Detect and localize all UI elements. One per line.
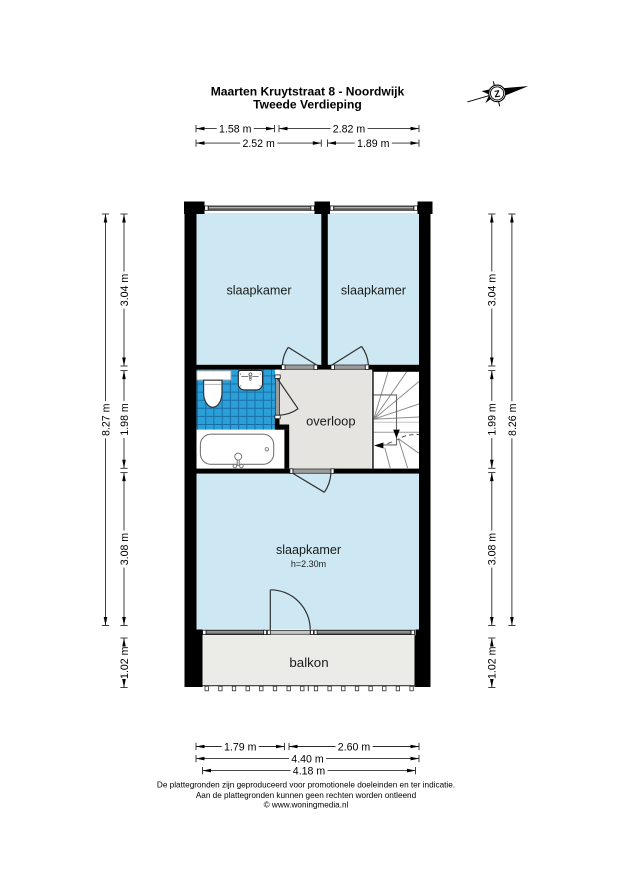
svg-text:© www.woningmedia.nl: © www.woningmedia.nl xyxy=(264,801,349,810)
svg-text:4.18 m: 4.18 m xyxy=(293,766,326,778)
svg-text:h=2.30m: h=2.30m xyxy=(291,559,326,569)
svg-text:3.04 m: 3.04 m xyxy=(487,274,499,307)
svg-text:slaapkamer: slaapkamer xyxy=(341,284,406,298)
svg-text:8.26 m: 8.26 m xyxy=(507,403,519,436)
svg-text:Tweede Verdieping: Tweede Verdieping xyxy=(253,98,362,112)
svg-text:overloop: overloop xyxy=(306,414,355,429)
svg-text:2.82 m: 2.82 m xyxy=(333,124,366,136)
svg-text:Maarten Kruytstraat 8 - Noordw: Maarten Kruytstraat 8 - Noordwijk xyxy=(211,85,405,99)
svg-text:slaapkamer: slaapkamer xyxy=(226,284,291,298)
svg-text:2.60 m: 2.60 m xyxy=(338,741,371,753)
svg-text:balkon: balkon xyxy=(289,655,328,670)
svg-text:1.89 m: 1.89 m xyxy=(357,138,390,150)
svg-text:4.40 m: 4.40 m xyxy=(291,754,324,766)
svg-text:1.58 m: 1.58 m xyxy=(219,124,252,136)
svg-text:Aan de plattegronden kunnen ge: Aan de plattegronden kunnen geen rechten… xyxy=(196,791,417,800)
svg-text:3.04 m: 3.04 m xyxy=(119,274,131,307)
svg-text:8.27 m: 8.27 m xyxy=(100,403,112,436)
svg-text:3.08 m: 3.08 m xyxy=(119,533,131,566)
svg-text:De plattegronden zijn geproduc: De plattegronden zijn geproduceerd voor … xyxy=(157,780,455,789)
svg-text:1.79 m: 1.79 m xyxy=(224,741,257,753)
svg-text:1.98 m: 1.98 m xyxy=(119,403,131,436)
svg-text:slaapkamer: slaapkamer xyxy=(276,543,341,557)
svg-text:1.02 m: 1.02 m xyxy=(119,646,131,679)
svg-text:1.02 m: 1.02 m xyxy=(487,646,499,679)
svg-text:2.52 m: 2.52 m xyxy=(242,138,275,150)
svg-text:1.99 m: 1.99 m xyxy=(487,403,499,436)
svg-text:3.08 m: 3.08 m xyxy=(487,533,499,566)
